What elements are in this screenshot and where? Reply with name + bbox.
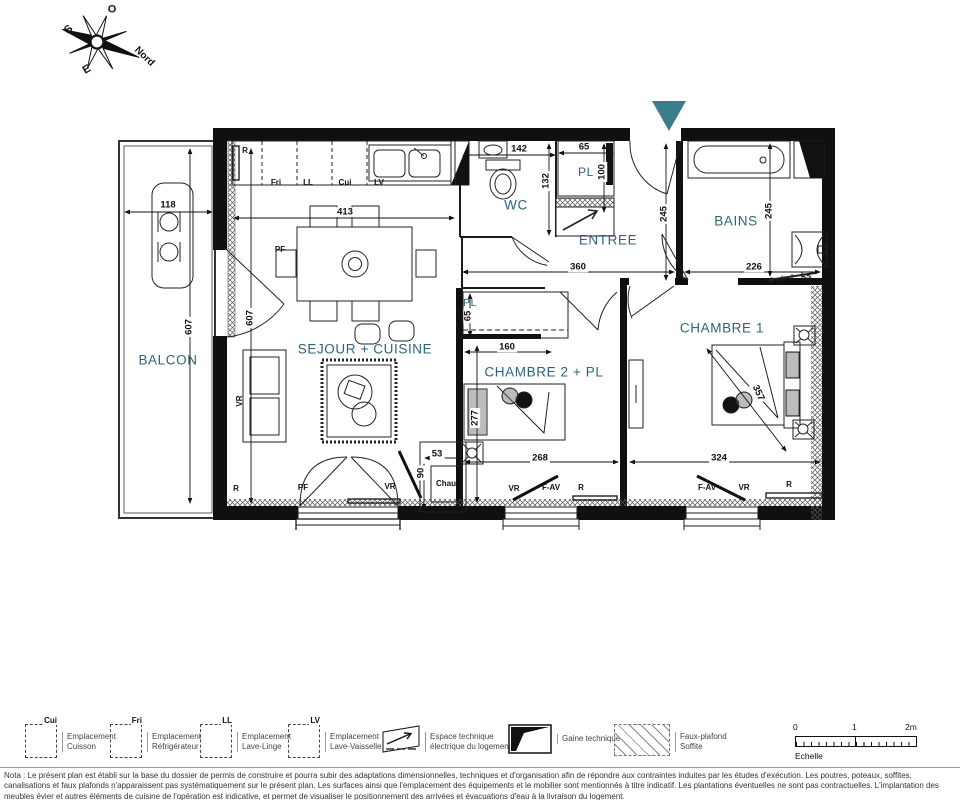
legend-espace-technique-icon <box>382 724 420 759</box>
legend-lave-linge-line2: Lave-Linge <box>242 742 282 751</box>
legend-lave-linge-icon: LL <box>200 724 232 758</box>
label-cui: Cui <box>339 179 352 187</box>
dim-wc-width: 142 <box>509 144 529 154</box>
ch1-furniture <box>629 326 815 439</box>
legend-lave-linge-line1: Emplacement <box>242 732 291 741</box>
dim-chau-depth: 90 <box>416 466 426 481</box>
dim-sejour-height: 607 <box>245 308 255 328</box>
dim-pl-depth: 100 <box>597 162 607 182</box>
windows <box>296 507 760 530</box>
label-fav-ch1: F-AV <box>698 484 716 492</box>
room-label-entree: ENTREE <box>579 233 637 247</box>
label-vr-balcony: VR <box>236 395 244 406</box>
scale-caption: Echelle <box>795 751 823 761</box>
room-label-wc: WC <box>504 198 528 212</box>
floorplan-page: O S E Nord <box>0 0 960 800</box>
dim-ch2-depth: 277 <box>470 408 480 428</box>
dim-ch2-width: 268 <box>530 453 550 463</box>
entry-closet <box>556 141 614 236</box>
legend-item-cuisson: Cui EmplacementCuisson <box>25 724 116 758</box>
legend-faux-line1: Faux-plafond <box>680 732 727 741</box>
scale-ruler <box>795 736 917 747</box>
legend-cuisson-tag: Cui <box>43 716 58 725</box>
legend-refrigerateur-tag: Fri <box>131 716 143 725</box>
dim-ch1-width: 324 <box>709 453 729 463</box>
label-radiator-1: R <box>242 147 248 155</box>
dim-pl-width: 65 <box>577 142 592 152</box>
legend-cuisson-icon: Cui <box>25 724 57 758</box>
legend-faux-line2: Soffite <box>680 742 703 751</box>
label-lv: LV <box>374 179 384 187</box>
legend-gaine-label: Gaine technique <box>562 734 620 743</box>
label-pf-sejour: PF <box>298 484 308 492</box>
dim-entree-width: 360 <box>568 262 588 272</box>
dim-sejour-width: 413 <box>335 207 355 217</box>
legend-cuisson-line1: Emplacement <box>67 732 116 741</box>
room-label-balcon: BALCON <box>138 353 197 367</box>
label-ll: LL <box>303 179 313 187</box>
legend-lave-linge-tag: LL <box>221 716 233 725</box>
legend-item-espace-technique: Espace techniqueélectrique du logement <box>382 724 511 759</box>
legend-faux-plafond-icon <box>614 724 670 756</box>
dim-entree-depth: 245 <box>659 204 669 224</box>
room-label-pl-chambre2: PL <box>463 298 477 309</box>
partitions <box>460 141 556 290</box>
room-label-chambre2: CHAMBRE 2 + PL <box>484 365 603 379</box>
legend-item-gaine: Gaine technique <box>508 724 620 759</box>
legend-espace-line2: électrique du logement <box>430 742 511 751</box>
legend-lave-vaisselle-icon: LV <box>288 724 320 758</box>
label-chaudiere: Chau <box>436 480 456 488</box>
legend-refrigerateur-line1: Emplacement <box>152 732 201 741</box>
legend-lave-vaisselle-line2: Lave-Vaisselle <box>330 742 381 751</box>
dim-chau-width: 53 <box>430 449 445 459</box>
legend-cuisson-line2: Cuisson <box>67 742 96 751</box>
legend-espace-line1: Espace technique <box>430 732 494 741</box>
legend-item-lave-vaisselle: LV EmplacementLave-Vaisselle <box>288 724 381 758</box>
balcony-railing <box>119 141 215 518</box>
legend-gaine-icon <box>508 724 552 759</box>
label-radiator-3: R <box>578 484 584 492</box>
legend-item-refrigerateur: Fri EmplacementRéfrigérateur <box>110 724 201 758</box>
label-vr-ch2: VR <box>508 485 519 493</box>
legend-item-lave-linge: LL EmplacementLave-Linge <box>200 724 291 758</box>
legend-refrigerateur-icon: Fri <box>110 724 142 758</box>
scale-tick-1: 1 <box>852 722 857 732</box>
label-seche-serviettes: SS <box>800 272 812 281</box>
dim-balcon-height: 607 <box>184 317 194 337</box>
room-label-bains: BAINS <box>714 214 758 228</box>
label-vr-ch1: VR <box>738 484 749 492</box>
label-radiator-4: R <box>786 481 792 489</box>
label-vr-sejour: VR <box>384 483 395 491</box>
ch2-closet <box>463 292 568 339</box>
room-label-sejour: SEJOUR + CUISINE <box>298 342 433 356</box>
room-label-pl-entree: PL <box>578 166 594 178</box>
dim-pl2-width: 160 <box>497 342 517 352</box>
label-fav-ch2: F-AV <box>542 484 560 492</box>
living-furniture <box>243 321 414 442</box>
legend-refrigerateur-line2: Réfrigérateur <box>152 742 199 751</box>
label-fri: Fri <box>271 179 281 187</box>
dim-wc-depth: 132 <box>541 171 551 191</box>
legend-lave-vaisselle-tag: LV <box>309 716 321 725</box>
legend-item-faux-plafond: Faux-plafondSoffite <box>614 724 727 756</box>
dim-bains-width: 226 <box>744 262 764 272</box>
scale-tick-0: 0 <box>793 722 798 732</box>
dim-bains-depth: 245 <box>764 201 774 221</box>
legend-lave-vaisselle-line1: Emplacement <box>330 732 379 741</box>
dim-balcon-width: 118 <box>158 200 177 210</box>
nota-disclaimer: Nota : Le présent plan est établi sur la… <box>0 767 960 800</box>
dining-set <box>276 206 436 321</box>
scale-tick-2m: 2m <box>905 722 917 732</box>
compass-west-label: O <box>108 5 117 16</box>
label-pf-balcony: PF <box>275 246 285 254</box>
room-label-chambre1: CHAMBRE 1 <box>680 321 764 335</box>
dim-pl2-depth: 65 <box>463 309 473 324</box>
label-radiator-2: R <box>233 485 239 493</box>
